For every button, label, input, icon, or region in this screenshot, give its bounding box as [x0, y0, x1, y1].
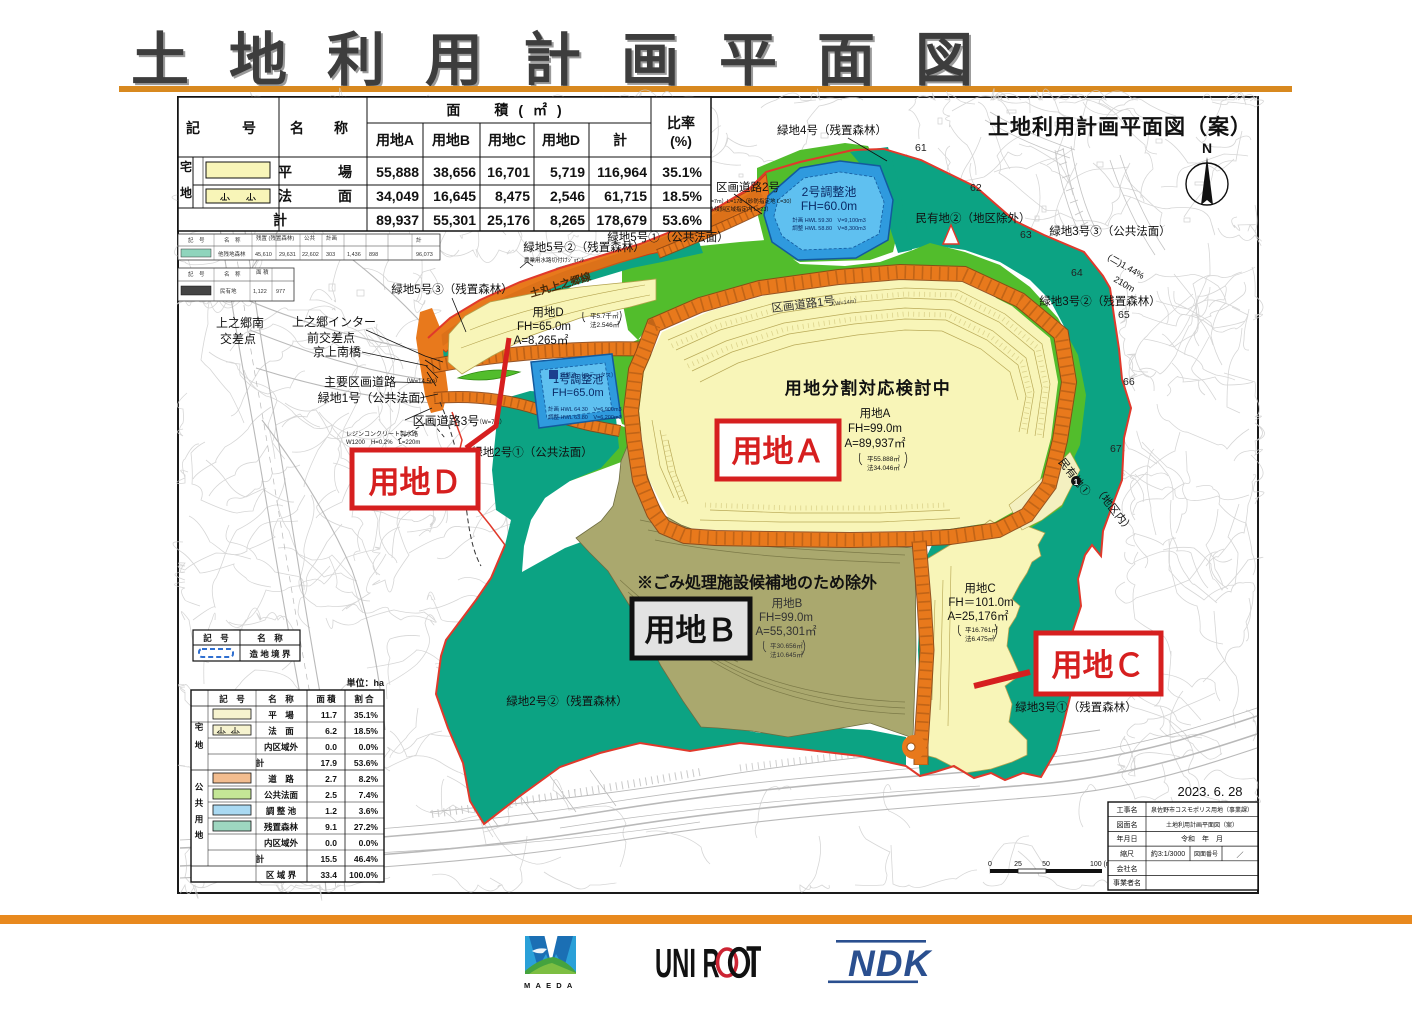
svg-text:NDK: NDK	[848, 943, 932, 984]
svg-text:MAEDA: MAEDA	[524, 981, 578, 990]
svg-text:UNI R: UNI R	[655, 942, 720, 987]
